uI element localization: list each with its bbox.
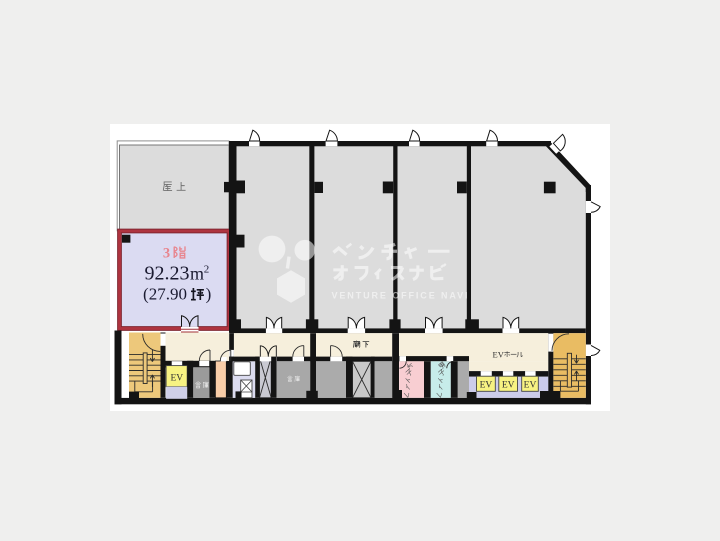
svg-text:EV: EV: [493, 350, 505, 360]
svg-text:92.23: 92.23: [145, 263, 190, 285]
svg-text:EV: EV: [170, 373, 183, 383]
svg-text:m: m: [190, 264, 204, 284]
svg-text:2: 2: [204, 264, 210, 276]
svg-text:3: 3: [163, 246, 170, 262]
svg-text:EV: EV: [502, 381, 515, 391]
svg-text:EV: EV: [524, 381, 537, 391]
svg-text:(27.90: (27.90: [143, 285, 187, 304]
svg-text:): ): [206, 285, 212, 304]
svg-text:VENTURE OFFICE NAVI: VENTURE OFFICE NAVI: [332, 290, 470, 300]
svg-text:EV: EV: [480, 381, 493, 391]
